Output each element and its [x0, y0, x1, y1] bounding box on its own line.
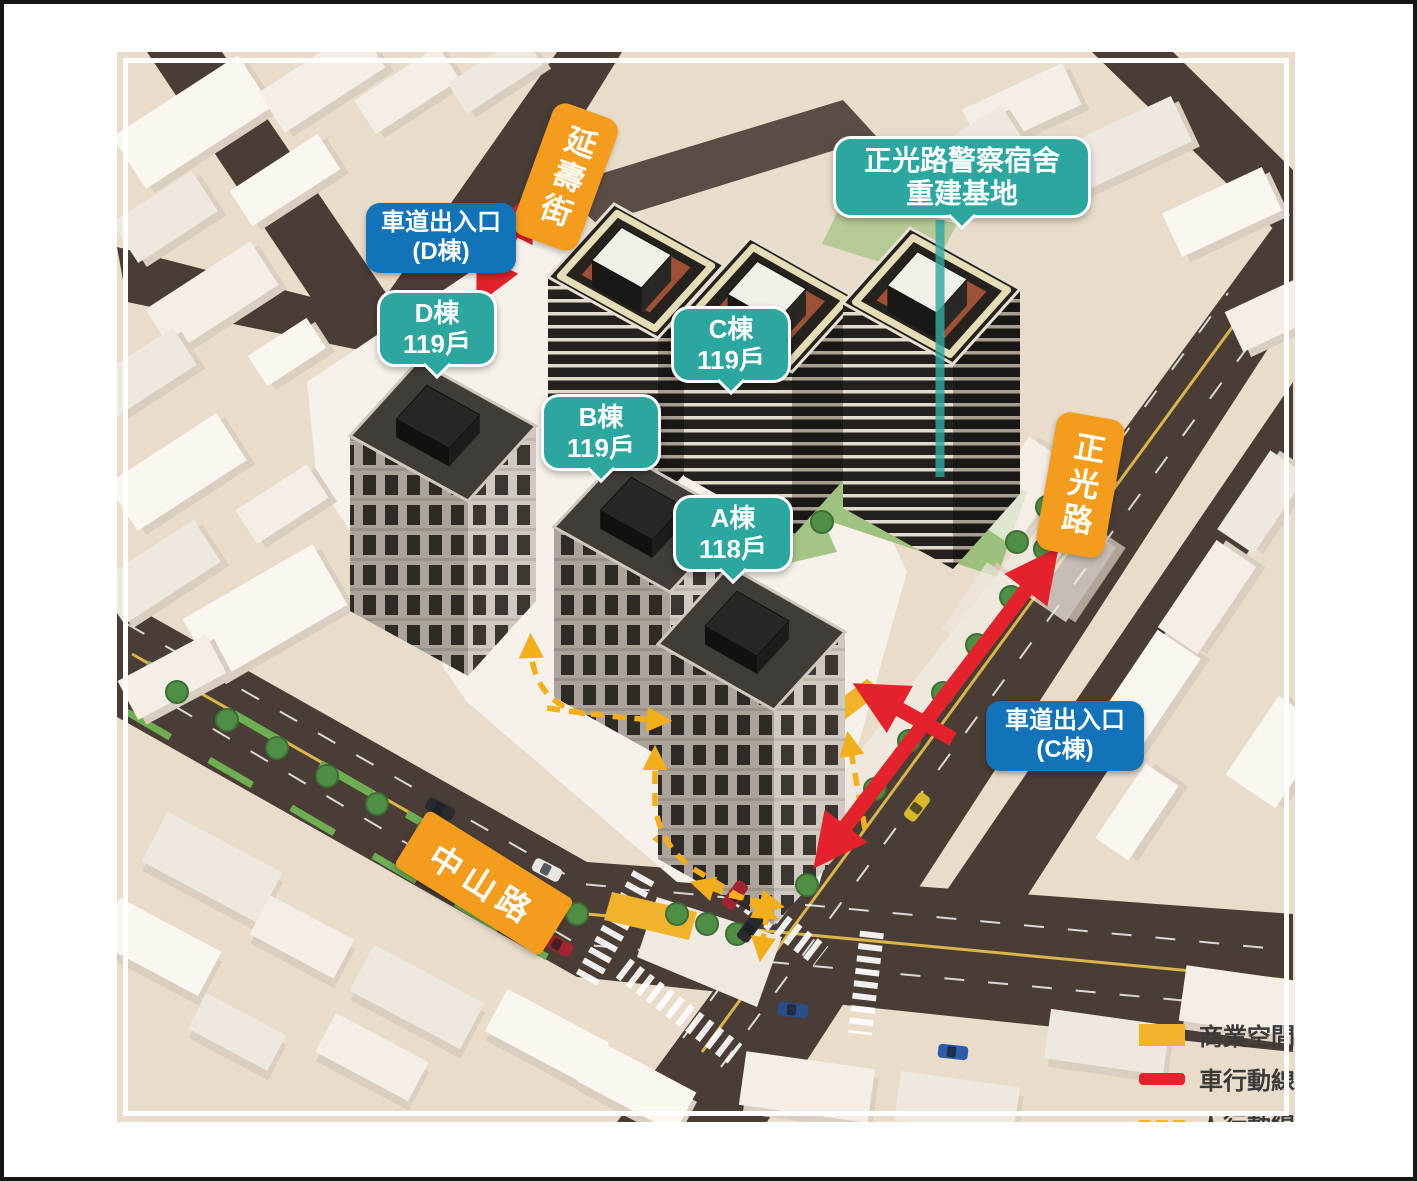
- legend-row-pedestrian: 人行動線: [1139, 1105, 1295, 1122]
- tower-b-name: B棟: [558, 402, 644, 433]
- vehicle-entrance-c-label: 車道出入口 (C棟): [986, 701, 1144, 771]
- tower-d-bubble: D棟 119戶: [377, 290, 497, 367]
- entrance-c-line2: (C棟): [998, 736, 1132, 765]
- pedestrian-route-swatch-icon: [1139, 1120, 1185, 1123]
- commercial-swatch-icon: [1139, 1024, 1185, 1046]
- entrance-c-line1: 車道出入口: [998, 707, 1132, 736]
- legend-pedestrian-label: 人行動線: [1199, 1105, 1295, 1122]
- tower-d-units: 119戶: [394, 329, 480, 360]
- tower-b-bubble: B棟 119戶: [541, 394, 661, 471]
- tower-a-bubble: A棟 118戶: [673, 495, 793, 572]
- tower-b-units: 119戶: [558, 433, 644, 464]
- rebuild-site-line2: 重建基地: [850, 177, 1074, 210]
- site-plan-rendering: [117, 52, 1295, 1122]
- rebuild-site-line1: 正光路警察宿舍: [850, 144, 1074, 177]
- legend-row-vehicle: 車行動線: [1139, 1061, 1295, 1096]
- tower-c-name: C棟: [688, 314, 774, 345]
- site-plan: 延壽街 車道出入口 (D棟) D棟 119戶 C棟 119戶 B棟 119戶 A…: [117, 52, 1295, 1122]
- tower-c-bubble: C棟 119戶: [671, 306, 791, 383]
- tower-c-units: 119戶: [688, 345, 774, 376]
- legend-commercial-label: 商業空間: [1199, 1017, 1295, 1052]
- entrance-d-line1: 車道出入口: [378, 209, 504, 238]
- tower-a-units: 118戶: [690, 534, 776, 565]
- entrance-d-line2: (D棟): [378, 238, 504, 267]
- tower-d-name: D棟: [394, 298, 480, 329]
- vehicle-entrance-d-label: 車道出入口 (D棟): [366, 203, 516, 273]
- tower-a-name: A棟: [690, 503, 776, 534]
- vehicle-route-swatch-icon: [1139, 1073, 1185, 1085]
- legend-vehicle-label: 車行動線: [1199, 1061, 1295, 1096]
- legend: 商業空間 車行動線 人行動線: [1139, 1008, 1295, 1122]
- poster-page: 延壽街 車道出入口 (D棟) D棟 119戶 C棟 119戶 B棟 119戶 A…: [0, 0, 1417, 1181]
- legend-row-commercial: 商業空間: [1139, 1017, 1295, 1052]
- rebuild-site-bubble: 正光路警察宿舍 重建基地: [833, 136, 1091, 218]
